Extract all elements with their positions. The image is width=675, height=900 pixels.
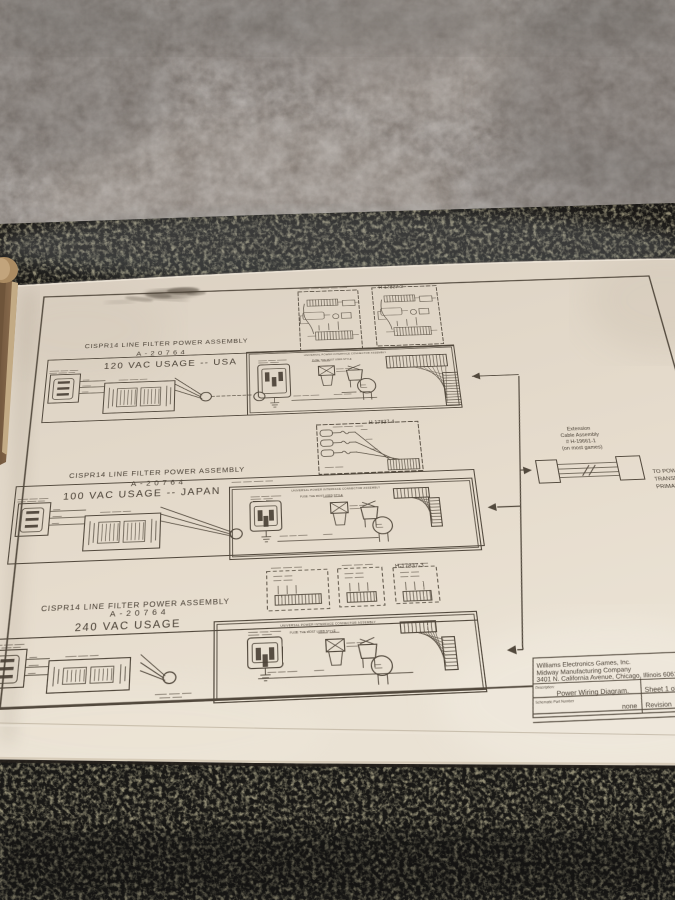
svg-text:120 VAC USAGE -- USA: 120 VAC USAGE -- USA — [104, 357, 238, 371]
svg-text:(on most games): (on most games) — [562, 444, 604, 451]
svg-text:Sheet 1 of: Sheet 1 of — [644, 685, 675, 695]
svg-text:FUSE: THE MOST USED STYLE: FUSE: THE MOST USED STYLE — [290, 630, 337, 635]
svg-text:TO POWER: TO POWER — [652, 467, 675, 474]
svg-text:H-17837-3: H-17837-3 — [395, 562, 425, 570]
svg-text:H-17837-4: H-17837-4 — [368, 419, 395, 425]
svg-text:TRANSFORMER: TRANSFORMER — [654, 474, 675, 482]
svg-text:CISPR14 LINE FILTER POWER ASSE: CISPR14 LINE FILTER POWER ASSEMBLY — [84, 339, 248, 351]
svg-text:Power Wiring Diagram.: Power Wiring Diagram. — [557, 687, 630, 699]
svg-text:Description:: Description: — [535, 684, 555, 690]
svg-text:FUSE: THE MOST USED STYLE: FUSE: THE MOST USED STYLE — [312, 359, 352, 362]
svg-text:240 VAC USAGE: 240 VAC USAGE — [74, 618, 181, 634]
svg-text:Revision: Revision — [645, 701, 672, 711]
svg-text:none: none — [622, 704, 638, 712]
svg-text:100 VAC USAGE -- JAPAN: 100 VAC USAGE -- JAPAN — [63, 486, 221, 503]
svg-text:Schematic Part Number: Schematic Part Number — [535, 698, 574, 705]
svg-text:H-17837-2: H-17837-2 — [378, 284, 404, 290]
svg-text:PRIMARY: PRIMARY — [655, 483, 675, 490]
